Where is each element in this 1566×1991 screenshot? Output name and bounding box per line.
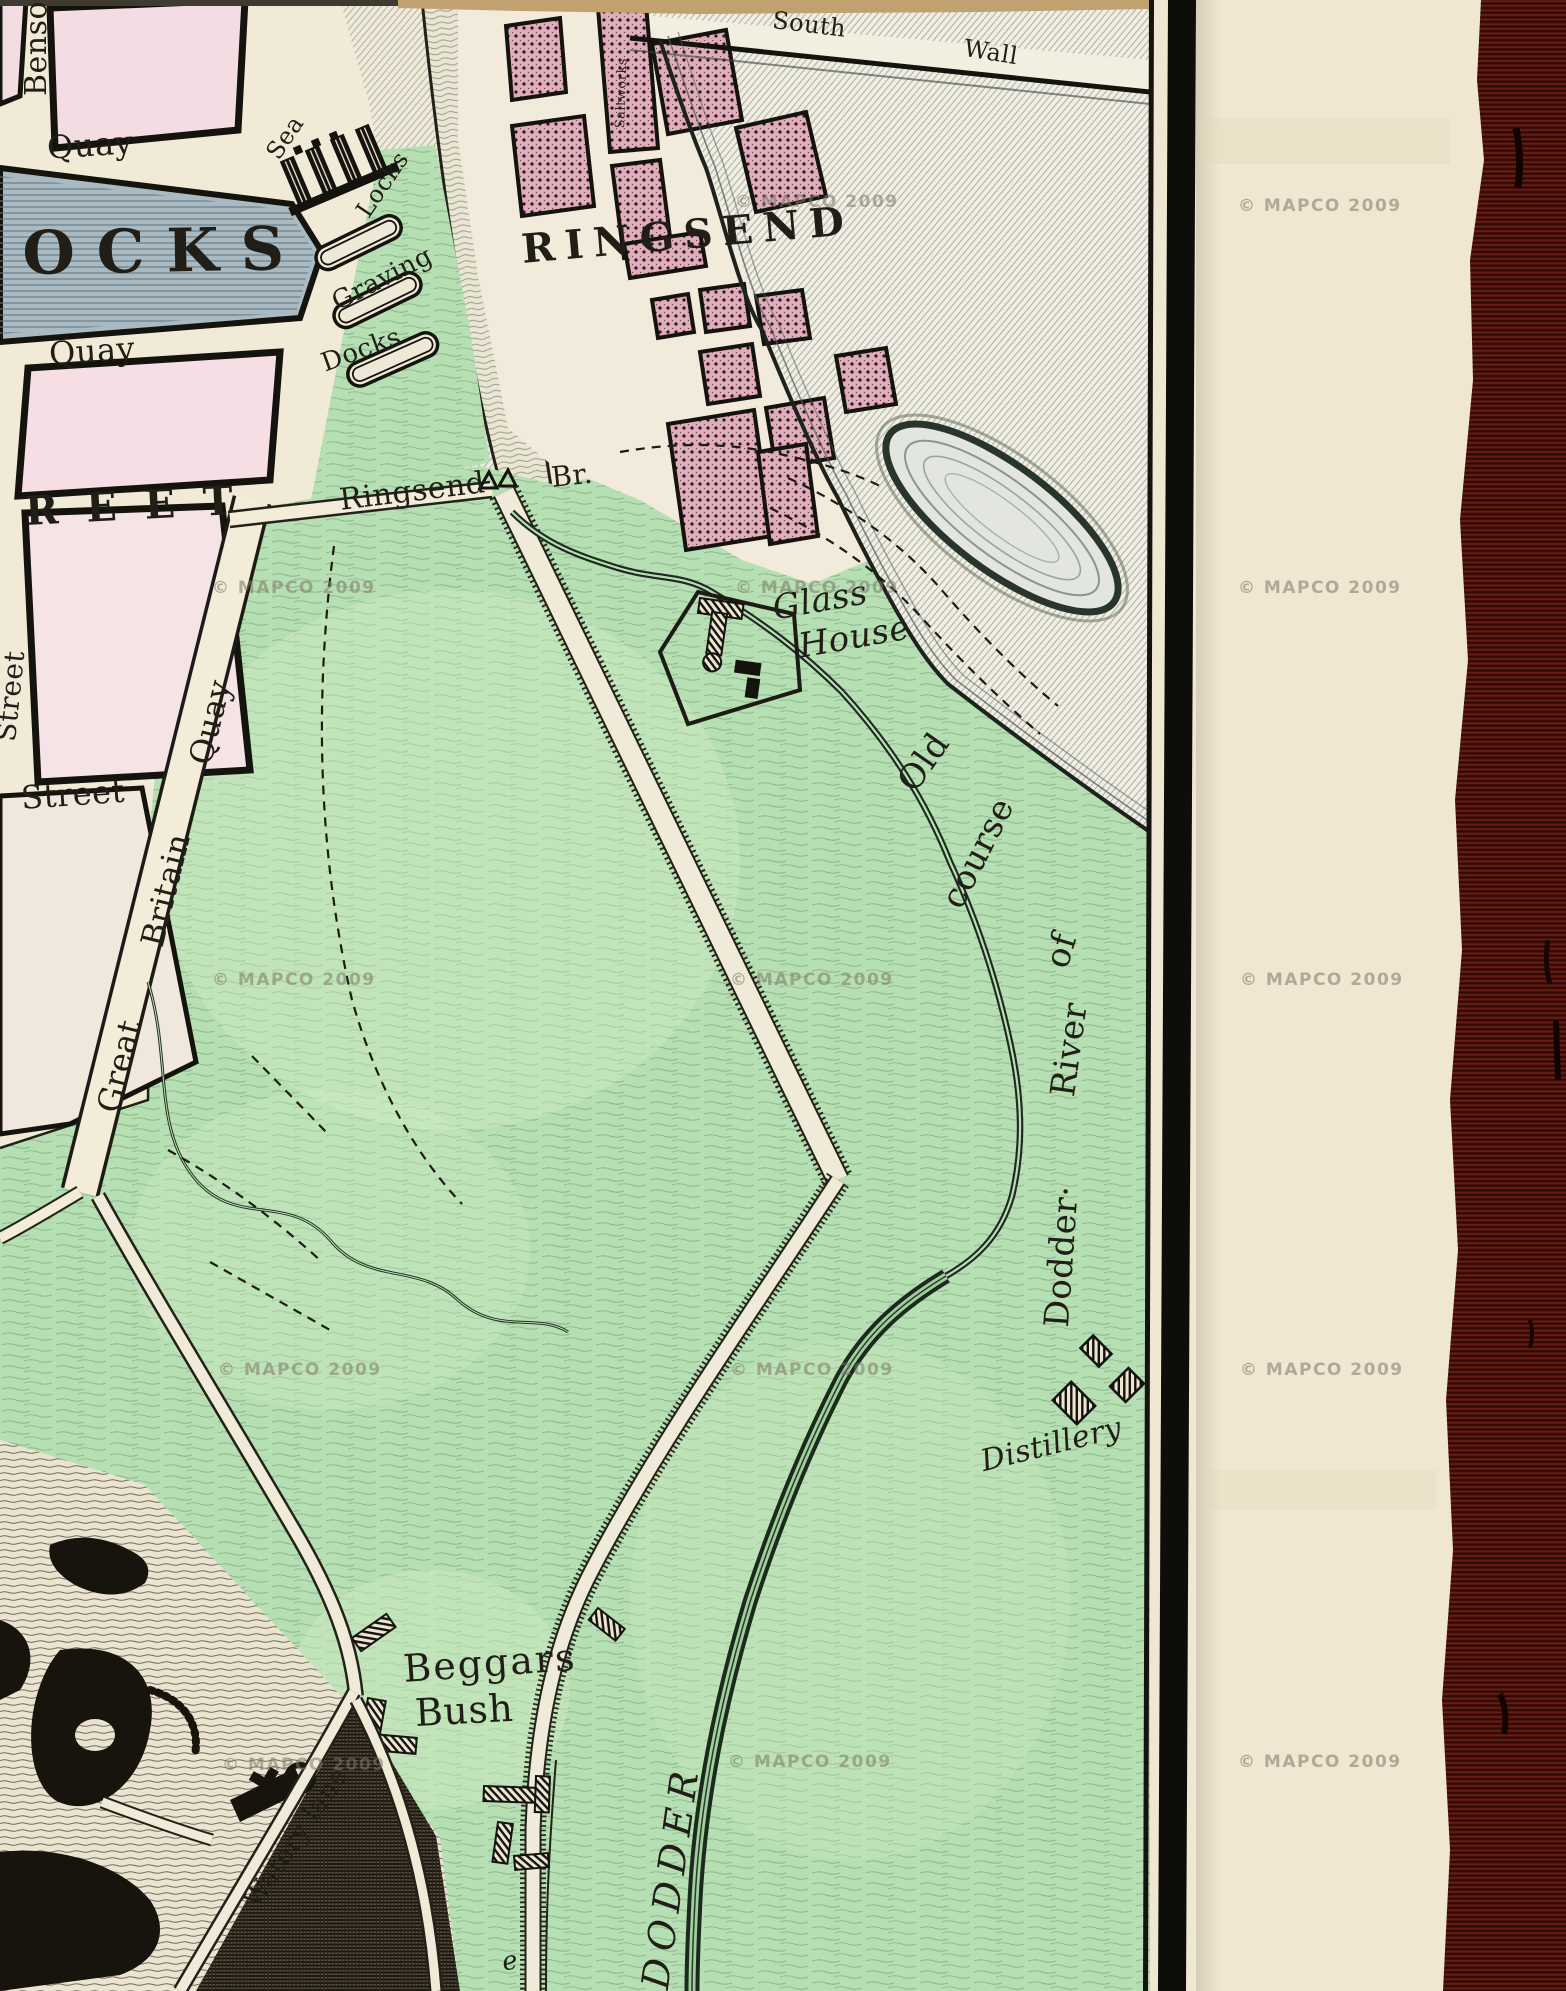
mapco-watermark: © MAPCO 2009 (212, 578, 376, 598)
map-page: Benson Quay OCKS Sea Locks Graving Docks… (0, 0, 1566, 1991)
mapco-watermark: © MAPCO 2009 (212, 970, 376, 990)
label-saltworks: Saltworks (614, 58, 629, 129)
mapco-watermark: © MAPCO 2009 (222, 1755, 386, 1775)
label-bush: Bush (414, 1689, 514, 1732)
label-beggars: Beggars (402, 1638, 578, 1688)
label-benson-street: Benson (22, 0, 52, 96)
label-docks-basin: OCKS (22, 219, 307, 284)
mapco-watermark: © MAPCO 2009 (728, 1752, 892, 1772)
label-bridge: Br. (550, 460, 594, 492)
mapco-watermark: © MAPCO 2009 (1240, 970, 1404, 990)
mapco-watermark: © MAPCO 2009 (1238, 1752, 1402, 1772)
mapco-watermark: © MAPCO 2009 (1238, 578, 1402, 598)
label-street-reet: REET (24, 480, 262, 532)
label-quay-north: Quay (46, 126, 134, 164)
mapco-watermark: © MAPCO 2009 (1240, 1360, 1404, 1380)
mapco-watermark: © MAPCO 2009 (730, 970, 894, 990)
mapco-watermark: © MAPCO 2009 (218, 1360, 382, 1380)
mapco-watermark: © MAPCO 2009 (735, 192, 899, 212)
map-engraving (0, 0, 1566, 1991)
mapco-watermark: © MAPCO 2009 (735, 578, 899, 598)
mapco-watermark: © MAPCO 2009 (1238, 196, 1402, 216)
label-street-lower: Street (20, 775, 126, 814)
label-quay-south: Quay (48, 332, 136, 370)
mapco-watermark: © MAPCO 2009 (730, 1360, 894, 1380)
label-dodder-old: Dodder· (1040, 1184, 1084, 1328)
